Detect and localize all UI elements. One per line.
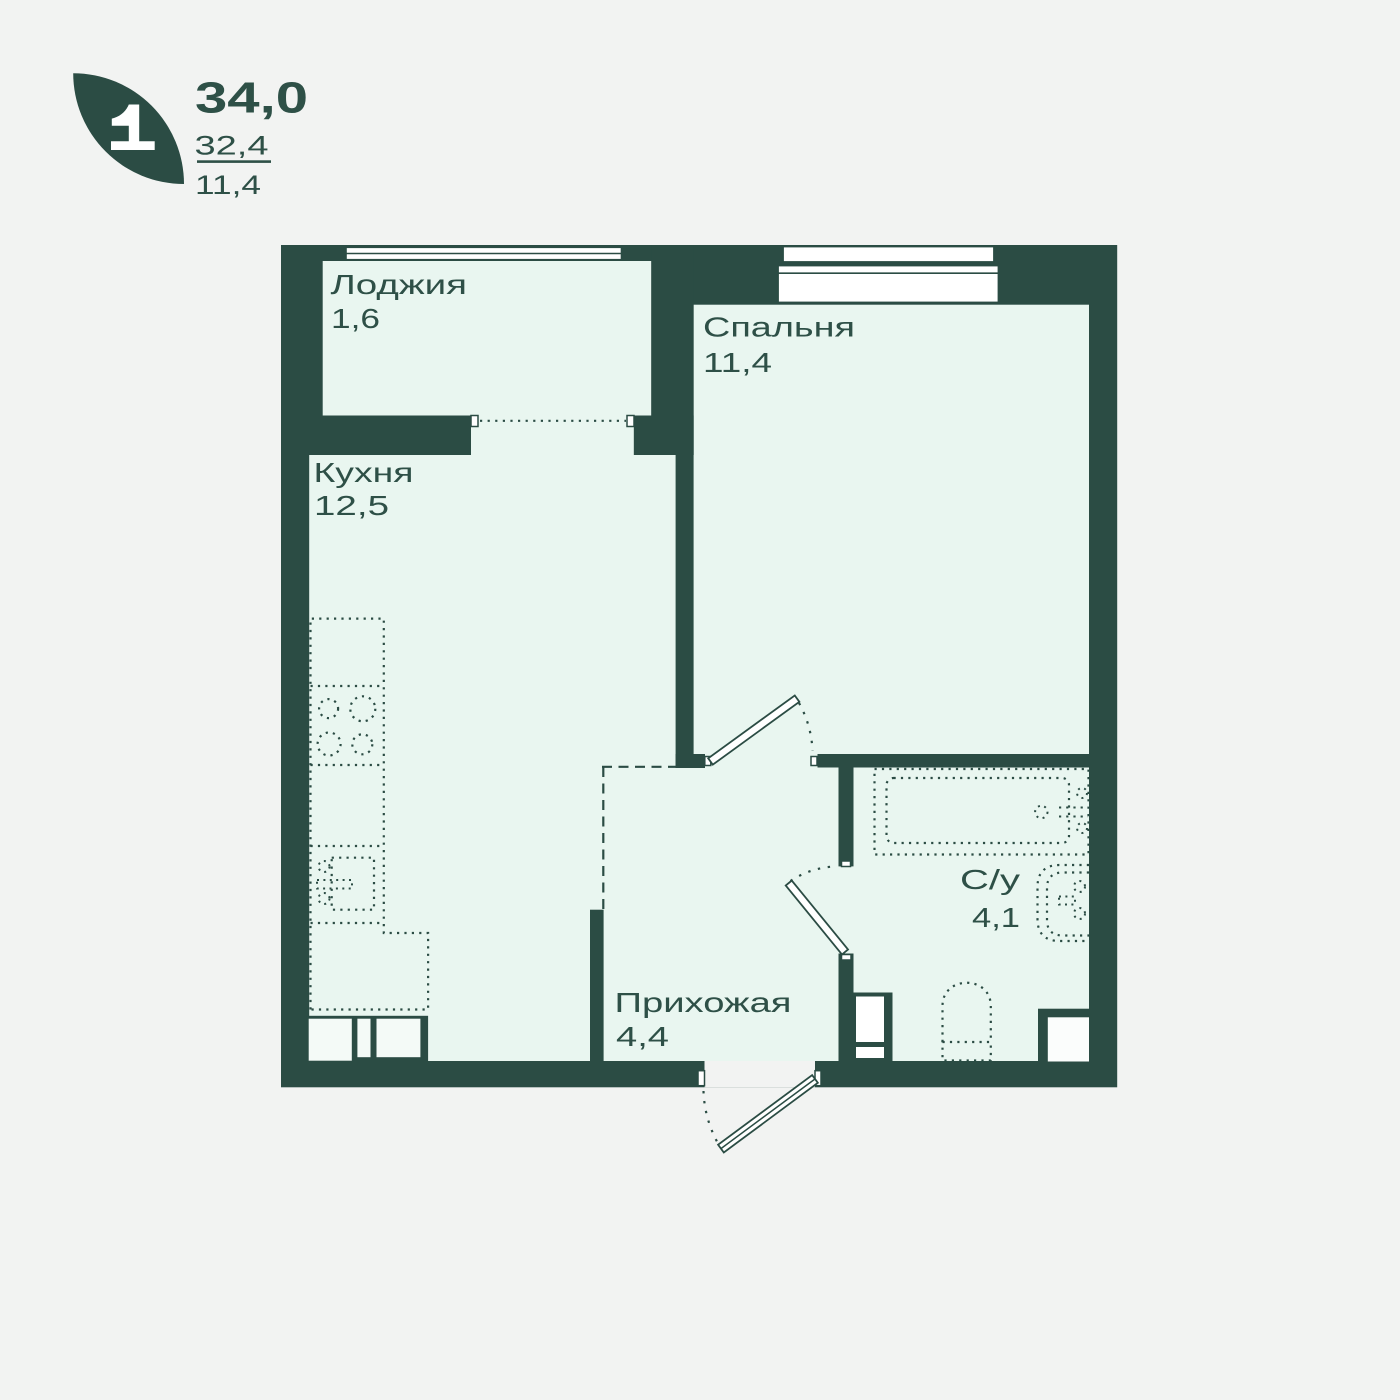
svg-text:11,4: 11,4 — [703, 347, 772, 378]
svg-text:32,4: 32,4 — [195, 131, 269, 161]
svg-text:1,6: 1,6 — [331, 303, 380, 334]
svg-text:4,4: 4,4 — [616, 1021, 669, 1052]
svg-text:4,1: 4,1 — [972, 902, 1020, 933]
svg-text:11,4: 11,4 — [195, 170, 261, 200]
svg-text:С/у: С/у — [960, 864, 1020, 895]
svg-text:Прихожая: Прихожая — [615, 987, 792, 1018]
svg-text:12,5: 12,5 — [314, 490, 389, 521]
svg-text:Кухня: Кухня — [314, 457, 414, 488]
svg-text:34,0: 34,0 — [195, 74, 308, 123]
svg-text:Лоджия: Лоджия — [331, 269, 468, 300]
svg-text:Спальня: Спальня — [703, 312, 855, 343]
